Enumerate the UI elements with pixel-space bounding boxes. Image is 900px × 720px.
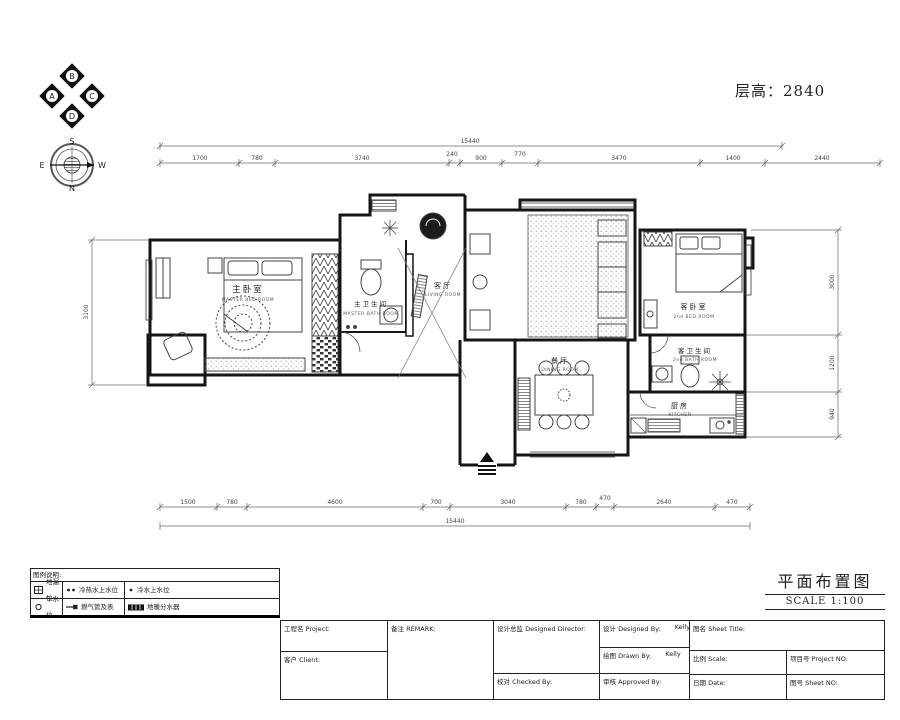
hot-cold-supply-icon bbox=[66, 587, 76, 593]
room-sublabel: MASTER BED ROOM bbox=[222, 297, 274, 303]
legend-item: 下水位 bbox=[31, 599, 63, 615]
dimension-label: 780 bbox=[226, 499, 238, 506]
legend-label: 下水位 bbox=[46, 591, 62, 623]
room-label-kitchen: 厨房 bbox=[671, 401, 689, 410]
title-block: 工程名 Project: 客户 Client: 备注 REMARK: 设计总监 … bbox=[280, 620, 885, 700]
floor-drain-icon bbox=[34, 586, 43, 594]
room-label-dining: 餐厅 bbox=[551, 356, 569, 365]
dimension-label: 4600 bbox=[327, 499, 342, 506]
compass-letter: B bbox=[69, 72, 75, 81]
floor-heating-icon bbox=[128, 604, 144, 611]
field-label: 图号 Sheet NO: bbox=[790, 677, 838, 687]
room-sublabel: KITCHEN bbox=[669, 412, 692, 418]
room-label-living: 客厅 bbox=[434, 281, 452, 290]
compass-letter: C bbox=[89, 92, 95, 101]
compass-letter: D bbox=[69, 112, 75, 121]
scale-field: 比例 Scale: bbox=[689, 651, 787, 675]
field-label: 备注 REMARK: bbox=[391, 623, 436, 633]
drawn-by-value: Kelly bbox=[665, 650, 680, 658]
room-label-guest-bedroom: 客卧室 bbox=[681, 302, 708, 311]
field-label: 校对 Checked By: bbox=[497, 676, 552, 686]
room-sublabel: LIVING ROOM bbox=[425, 292, 461, 298]
dimension-label: 780 bbox=[575, 499, 587, 506]
legend-item: 冷热水上水位 bbox=[63, 582, 125, 598]
dimension-label: 1400 bbox=[725, 155, 740, 162]
gas-pipe-meter-icon bbox=[66, 604, 78, 610]
field-label: 设计 Designed By: bbox=[603, 623, 661, 633]
floor-height-note: 层高：2840 bbox=[735, 80, 825, 101]
field-label: 日期 Date: bbox=[693, 677, 726, 687]
dimension-label: 700 bbox=[430, 499, 442, 506]
dimension-label: 15440 bbox=[445, 518, 464, 525]
legend-item: 冷水上水位 bbox=[125, 582, 279, 598]
dimension-label: 470 bbox=[599, 495, 611, 502]
divider bbox=[765, 594, 885, 595]
dimension-label: 1200 bbox=[829, 355, 836, 370]
date-field: 日期 Date: bbox=[689, 675, 787, 700]
top-dimension-chain: 15440 1700 780 3740 240 900 770 3470 140… bbox=[157, 138, 883, 167]
dimension-label: 3100 bbox=[83, 304, 90, 319]
drawing-title-block: 平面布置图 SCALE 1:100 bbox=[765, 568, 885, 611]
legend-table: 图例说明: 地漏位 冷热水上水位 冷水上水位 下水位 燃气管及表 地暖分水器 bbox=[30, 568, 280, 618]
sheet-title-field: 图名 Sheet Title: bbox=[689, 621, 884, 651]
drawn-by-field: 绘图 Drawn By: Kelly bbox=[600, 648, 689, 674]
project-field: 工程名 Project: bbox=[281, 621, 388, 652]
guest-bedroom-furniture bbox=[644, 232, 742, 328]
legend-label: 冷水上水位 bbox=[137, 582, 170, 598]
field-label: 审核 Approved By: bbox=[603, 676, 661, 686]
dimension-label: 3740 bbox=[354, 155, 369, 162]
master-bathroom-fixtures bbox=[340, 240, 406, 352]
room-sublabel: MASTER BATH ROOM bbox=[343, 311, 398, 317]
dimension-label: 940 bbox=[829, 408, 836, 420]
dimension-label: 3040 bbox=[500, 499, 515, 506]
legend-header: 图例说明: bbox=[31, 569, 279, 582]
dimension-label: 15440 bbox=[460, 138, 479, 145]
field-label: 工程名 Project: bbox=[284, 623, 330, 633]
guest-bathroom-fixtures bbox=[650, 335, 731, 393]
legend-label: 冷热水上水位 bbox=[79, 582, 118, 598]
living-room-furniture bbox=[470, 215, 628, 338]
room-sublabel: DINING ROOM bbox=[541, 367, 578, 373]
cold-supply-icon bbox=[128, 587, 134, 593]
project-no-field: 项目号 Project NO: bbox=[787, 651, 884, 675]
drain-outlet-icon bbox=[34, 603, 43, 611]
dimension-label: 1700 bbox=[192, 155, 207, 162]
drawing-scale: SCALE 1:100 bbox=[765, 596, 885, 607]
room-label-master-bedroom: 主卧室 bbox=[232, 284, 264, 295]
dimension-label: 770 bbox=[514, 151, 526, 158]
dimension-label: 470 bbox=[726, 499, 738, 506]
entry-arrow-icon bbox=[478, 452, 496, 474]
field-label: 项目号 Project NO: bbox=[790, 653, 848, 663]
field-label: 图名 Sheet Title: bbox=[693, 623, 745, 633]
field-label: 客户 Client: bbox=[284, 654, 320, 664]
dimension-label: 2440 bbox=[814, 155, 829, 162]
room-sublabel: 2nd BATH ROOM bbox=[673, 357, 717, 363]
designed-by-value: Kelly bbox=[675, 623, 690, 631]
legend-item: 地暖分水器 bbox=[125, 599, 279, 615]
field-label: 比例 Scale: bbox=[693, 653, 728, 663]
dimension-label: 240 bbox=[446, 151, 458, 158]
master-bedroom-furniture bbox=[156, 254, 338, 372]
designed-by-field: 设计 Designed By: Kelly bbox=[600, 621, 689, 648]
dimension-label: 2640 bbox=[656, 499, 671, 506]
field-label: 绘图 Drawn By: bbox=[603, 650, 651, 660]
legend-label: 燃气管及表 bbox=[81, 599, 114, 615]
drawing-title: 平面布置图 bbox=[765, 568, 885, 592]
left-dimension-line: 3100 bbox=[83, 237, 148, 388]
floor-plan-sheet: { "header": { "floor_height_label": "层高：… bbox=[0, 0, 900, 720]
approved-by-field: 审核 Approved By: bbox=[600, 674, 689, 700]
client-field: 客户 Client: bbox=[281, 652, 388, 700]
legend-item: 燃气管及表 bbox=[63, 599, 125, 615]
sheet-no-field: 图号 Sheet NO: bbox=[787, 675, 884, 700]
field-label: 设计总监 Designed Director: bbox=[497, 623, 586, 633]
checked-by-field: 校对 Checked By: bbox=[494, 674, 600, 700]
room-sublabel: 2nd BED ROOM bbox=[674, 314, 715, 320]
dimension-label: 3000 bbox=[829, 274, 836, 289]
dimension-label: 900 bbox=[475, 155, 487, 162]
right-dimension-line: 3000 1200 940 bbox=[746, 227, 842, 440]
compass-letter: A bbox=[49, 92, 55, 101]
dimension-label: 3470 bbox=[611, 155, 626, 162]
legend-label: 地暖分水器 bbox=[147, 599, 180, 615]
floor-plan-drawing: 15440 1700 780 3740 240 900 770 3470 140… bbox=[0, 130, 900, 560]
dimension-label: 1500 bbox=[180, 499, 195, 506]
dimension-label: 780 bbox=[251, 155, 263, 162]
abcd-orientation-icon: B A C D bbox=[39, 63, 104, 128]
room-label-guest-bath: 客卫生间 bbox=[678, 346, 712, 355]
remark-field: 备注 REMARK: bbox=[388, 621, 494, 700]
design-director-field: 设计总监 Designed Director: bbox=[494, 621, 600, 674]
room-label-master-bath: 主卫生间 bbox=[354, 299, 388, 308]
divider bbox=[765, 609, 885, 610]
bottom-dimension-chain: 1500 780 4600 700 3040 780 470 2640 470 … bbox=[157, 495, 753, 530]
